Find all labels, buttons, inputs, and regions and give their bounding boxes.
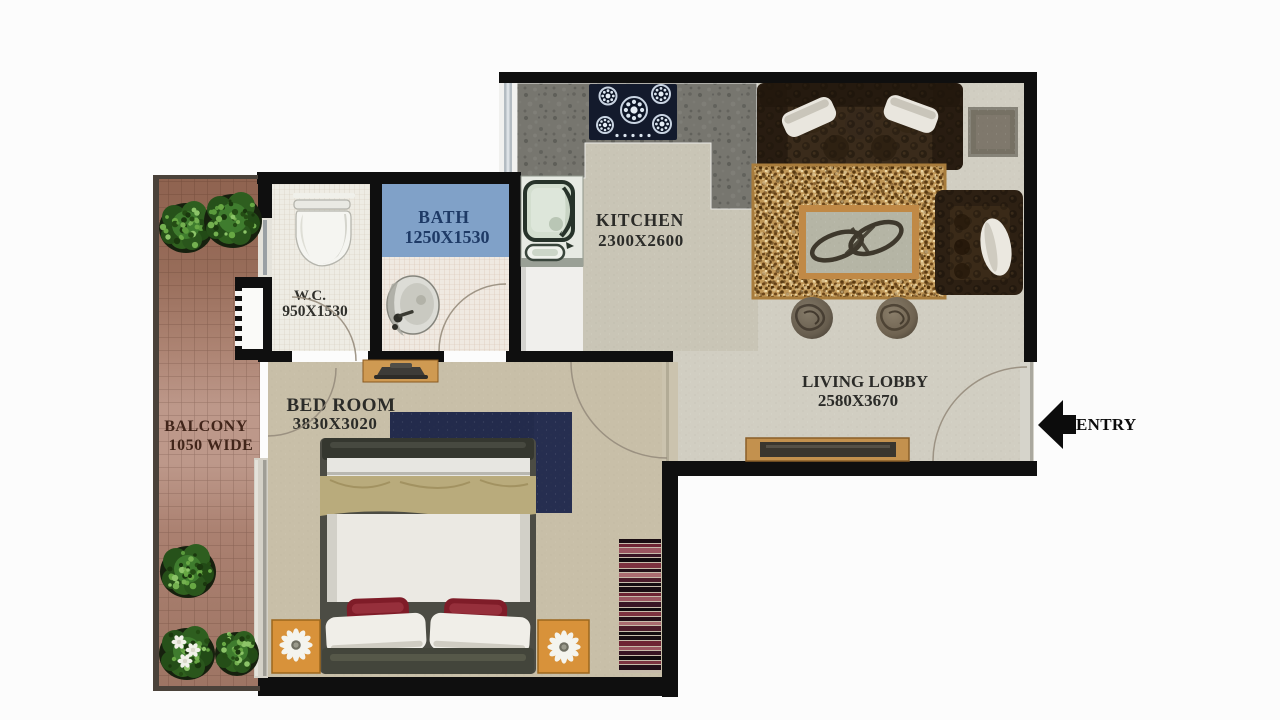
svg-text:2300X2600: 2300X2600 [598,231,684,250]
svg-text:BALCONY: BALCONY [164,418,248,435]
svg-text:3830X3020: 3830X3020 [293,414,378,433]
svg-text:1050 WIDE: 1050 WIDE [169,437,254,454]
svg-text:ENTRY: ENTRY [1076,415,1136,434]
svg-text:LIVING LOBBY: LIVING LOBBY [802,372,928,391]
svg-text:1250X1530: 1250X1530 [405,227,490,247]
svg-text:KITCHEN: KITCHEN [596,210,684,230]
svg-text:BED ROOM: BED ROOM [286,395,395,416]
svg-text:BATH: BATH [418,207,470,227]
svg-text:2580X3670: 2580X3670 [818,391,898,410]
svg-text:W.C.: W.C. [294,288,326,304]
